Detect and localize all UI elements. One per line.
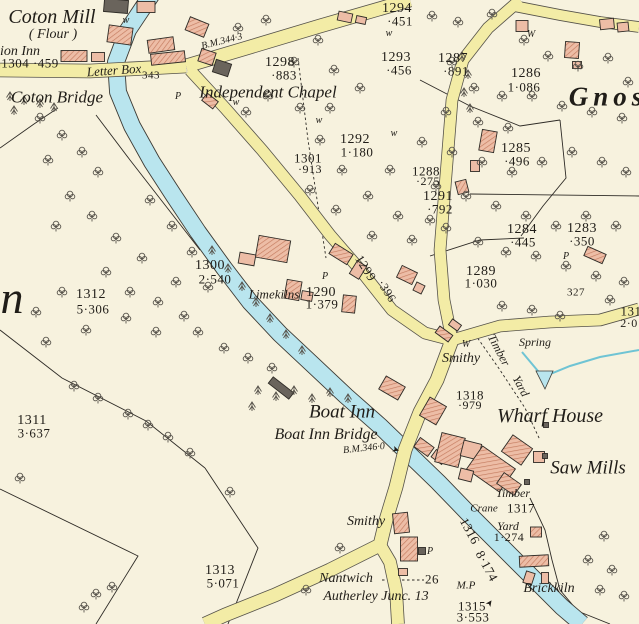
deciduous-tree-icon bbox=[331, 205, 341, 215]
conifer-tree-icon bbox=[461, 88, 468, 97]
label-limekilns: Limekilns bbox=[249, 288, 300, 301]
label-area-1287: ·891 bbox=[443, 65, 469, 78]
deciduous-tree-icon bbox=[591, 271, 601, 281]
deciduous-tree-icon bbox=[261, 15, 271, 25]
deciduous-tree-icon bbox=[599, 531, 609, 541]
deciduous-tree-icon bbox=[611, 221, 621, 231]
label-coton-mill: Coton Mill bbox=[8, 7, 95, 27]
deciduous-tree-icon bbox=[603, 53, 613, 63]
label-big-n: n bbox=[1, 275, 24, 321]
building bbox=[600, 18, 615, 29]
deciduous-tree-icon bbox=[171, 277, 181, 287]
label-num-327: 327 bbox=[567, 288, 585, 299]
deciduous-tree-icon bbox=[503, 123, 513, 133]
building bbox=[379, 376, 406, 400]
label-autherley: Autherley Junc. 13 bbox=[323, 590, 428, 604]
deciduous-tree-icon bbox=[267, 363, 277, 373]
label-gnosall: Gnos bbox=[569, 84, 639, 111]
deciduous-tree-icon bbox=[469, 83, 479, 93]
deciduous-tree-icon bbox=[581, 211, 591, 221]
label-area-1311: 3·637 bbox=[18, 427, 51, 440]
deciduous-tree-icon bbox=[57, 130, 67, 140]
label-spring: Spring bbox=[519, 336, 551, 348]
building bbox=[501, 435, 532, 465]
deciduous-tree-icon bbox=[123, 409, 133, 419]
label-area-1293: ·456 bbox=[386, 64, 412, 77]
label-area-1312: 5·306 bbox=[77, 303, 110, 316]
deciduous-tree-icon bbox=[77, 147, 87, 157]
deciduous-tree-icon bbox=[551, 221, 561, 231]
label-area-1301: ·913 bbox=[298, 163, 322, 175]
deciduous-tree-icon bbox=[557, 101, 567, 111]
deciduous-tree-icon bbox=[583, 555, 593, 565]
building bbox=[147, 37, 175, 53]
deciduous-tree-icon bbox=[145, 195, 155, 205]
deciduous-tree-icon bbox=[453, 17, 463, 27]
label-num-343: 343 bbox=[142, 71, 160, 82]
label-smithy-north: Smithy bbox=[442, 352, 480, 366]
conifer-tree-icon bbox=[255, 386, 262, 395]
conifer-tree-icon bbox=[273, 392, 280, 401]
deciduous-tree-icon bbox=[41, 337, 51, 347]
label-plot-1317: 1317 bbox=[507, 502, 535, 515]
building bbox=[401, 537, 418, 561]
deciduous-tree-icon bbox=[79, 602, 89, 612]
deciduous-tree-icon bbox=[561, 261, 571, 271]
label-pump-4: P bbox=[427, 547, 433, 557]
building bbox=[103, 0, 128, 14]
boundary-line bbox=[0, 108, 58, 148]
label-area-1288: ·275 bbox=[416, 175, 440, 187]
deciduous-tree-icon bbox=[15, 473, 25, 483]
label-area-1284: ·445 bbox=[510, 236, 536, 249]
label-area-1313: 5·071 bbox=[207, 577, 240, 590]
deciduous-tree-icon bbox=[125, 287, 135, 297]
conifer-tree-icon bbox=[467, 104, 474, 113]
deciduous-tree-icon bbox=[491, 201, 501, 211]
deciduous-tree-icon bbox=[313, 35, 323, 45]
building bbox=[455, 179, 469, 194]
deciduous-tree-icon bbox=[65, 191, 75, 201]
deciduous-tree-icon bbox=[521, 211, 531, 221]
label-pump-1: P bbox=[175, 92, 181, 102]
deciduous-tree-icon bbox=[473, 117, 483, 127]
building bbox=[92, 53, 105, 62]
building bbox=[419, 548, 426, 555]
label-well-3: w bbox=[386, 29, 393, 39]
road bbox=[380, 545, 398, 624]
building bbox=[268, 377, 293, 399]
label-well-1: w bbox=[123, 16, 130, 26]
label-boat-inn-bridge: Boat Inn Bridge bbox=[274, 427, 377, 443]
deciduous-tree-icon bbox=[617, 113, 627, 123]
deciduous-tree-icon bbox=[619, 591, 629, 601]
deciduous-tree-icon bbox=[363, 191, 373, 201]
building bbox=[342, 295, 357, 313]
label-coton-bridge: Coton Bridge bbox=[11, 89, 103, 106]
building bbox=[564, 42, 579, 59]
deciduous-tree-icon bbox=[417, 137, 427, 147]
deciduous-tree-icon bbox=[527, 305, 537, 315]
deciduous-tree-icon bbox=[93, 167, 103, 177]
deciduous-tree-icon bbox=[187, 247, 197, 257]
label-area-1298: ·883 bbox=[271, 69, 297, 82]
deciduous-tree-icon bbox=[407, 235, 417, 245]
label-plot-1312: 1312 bbox=[76, 288, 106, 302]
building bbox=[413, 282, 425, 294]
deciduous-tree-icon bbox=[385, 165, 395, 175]
deciduous-tree-icon bbox=[329, 65, 339, 75]
building-layer bbox=[61, 0, 629, 585]
building bbox=[238, 252, 256, 266]
building bbox=[392, 512, 409, 533]
deciduous-tree-icon bbox=[87, 211, 97, 221]
deciduous-tree-icon bbox=[57, 287, 67, 297]
building bbox=[212, 59, 231, 76]
deciduous-tree-icon bbox=[621, 167, 631, 177]
deciduous-tree-icon bbox=[107, 582, 117, 592]
label-area-1285: ·496 bbox=[504, 155, 530, 168]
label-timber-yard-s-1: Timber bbox=[496, 487, 530, 499]
label-well-6: w bbox=[391, 129, 398, 139]
label-letter-box: Letter Box bbox=[86, 62, 141, 79]
label-area-1286: 1·086 bbox=[508, 81, 541, 94]
deciduous-tree-icon bbox=[325, 103, 335, 113]
label-timber-crane: Crane bbox=[470, 504, 498, 515]
deciduous-tree-icon bbox=[243, 353, 253, 363]
label-flour: ( Flour ) bbox=[29, 28, 77, 42]
deciduous-tree-icon bbox=[101, 267, 111, 277]
deciduous-tree-icon bbox=[179, 311, 189, 321]
building bbox=[355, 16, 366, 25]
conifer-tree-icon bbox=[291, 386, 298, 395]
road bbox=[186, 0, 410, 66]
label-well-4: W bbox=[527, 30, 535, 40]
conifer-tree-icon bbox=[249, 402, 256, 411]
deciduous-tree-icon bbox=[315, 135, 325, 145]
building bbox=[107, 25, 133, 45]
deciduous-tree-icon bbox=[225, 487, 235, 497]
label-area-1290: 1·379 bbox=[306, 298, 339, 311]
deciduous-tree-icon bbox=[111, 233, 121, 243]
deciduous-tree-icon bbox=[567, 147, 577, 157]
label-area-1289: 1·030 bbox=[465, 277, 498, 290]
deciduous-tree-icon bbox=[151, 327, 161, 337]
deciduous-tree-icon bbox=[355, 83, 365, 93]
deciduous-tree-icon bbox=[597, 157, 607, 167]
label-area-1300: 2·540 bbox=[199, 273, 232, 286]
deciduous-tree-icon bbox=[51, 221, 61, 231]
label-well-7: W bbox=[462, 340, 470, 350]
os-map-canvas: Coton Mill( Flour )ion Inn1304 ·459Lette… bbox=[0, 0, 639, 624]
label-area-1294: ·451 bbox=[387, 15, 413, 28]
label-brickkiln: Brickkiln bbox=[523, 582, 574, 596]
boundary-line bbox=[0, 489, 138, 624]
label-boat-inn: Boat Inn bbox=[309, 403, 375, 422]
deciduous-tree-icon bbox=[193, 327, 203, 337]
building bbox=[584, 246, 606, 263]
deciduous-tree-icon bbox=[137, 253, 147, 263]
deciduous-tree-icon bbox=[497, 301, 507, 311]
deciduous-tree-icon bbox=[31, 307, 41, 317]
deciduous-tree-icon bbox=[393, 211, 403, 221]
deciduous-tree-icon bbox=[335, 543, 345, 553]
deciduous-tree-icon bbox=[121, 313, 131, 323]
label-area-1315: 3·553 bbox=[457, 611, 490, 624]
label-area-1291: ·792 bbox=[427, 203, 453, 216]
label-mile-post: M.P bbox=[457, 581, 476, 592]
boundary-line bbox=[470, 194, 639, 196]
deciduous-tree-icon bbox=[531, 251, 541, 261]
label-plot-1304: 1304 ·459 bbox=[1, 57, 59, 70]
label-area-1318: ·979 bbox=[458, 399, 482, 411]
building bbox=[617, 22, 629, 32]
building bbox=[61, 51, 87, 62]
deciduous-tree-icon bbox=[167, 221, 177, 231]
label-pump-3: P bbox=[563, 252, 569, 262]
building bbox=[471, 161, 480, 172]
label-nantwich: Nantwich bbox=[319, 572, 373, 586]
deciduous-tree-icon bbox=[241, 107, 251, 117]
deciduous-tree-icon bbox=[537, 157, 547, 167]
label-area-1292: 1·180 bbox=[341, 146, 374, 159]
deciduous-tree-icon bbox=[427, 11, 437, 21]
building bbox=[185, 17, 209, 37]
label-wharf-house: Wharf House bbox=[497, 406, 603, 426]
label-well-5: w bbox=[316, 116, 323, 126]
boundary-line bbox=[96, 115, 200, 250]
building bbox=[519, 555, 549, 568]
deciduous-tree-icon bbox=[153, 297, 163, 307]
deciduous-tree-icon bbox=[91, 589, 101, 599]
label-well-2: w bbox=[233, 98, 240, 108]
deciduous-tree-icon bbox=[605, 295, 615, 305]
label-area-131x: 2·0 bbox=[620, 317, 638, 329]
building bbox=[531, 527, 542, 537]
building bbox=[479, 129, 497, 152]
label-smithy-south: Smithy bbox=[347, 515, 385, 529]
label-area-1317: 1·274 bbox=[494, 531, 525, 543]
deciduous-tree-icon bbox=[507, 167, 517, 177]
deciduous-tree-icon bbox=[543, 51, 553, 61]
building bbox=[399, 569, 408, 576]
conifer-tree-icon bbox=[11, 106, 18, 115]
deciduous-tree-icon bbox=[619, 277, 629, 287]
label-pump-2: P bbox=[322, 272, 328, 282]
building bbox=[543, 454, 548, 459]
label-nantwich-miles: 26 bbox=[425, 573, 439, 586]
deciduous-tree-icon bbox=[497, 91, 507, 101]
deciduous-tree-icon bbox=[305, 185, 315, 195]
deciduous-tree-icon bbox=[595, 585, 605, 595]
label-area-1283: ·350 bbox=[569, 235, 595, 248]
building bbox=[397, 265, 418, 284]
deciduous-tree-icon bbox=[473, 237, 483, 247]
deciduous-tree-icon bbox=[219, 343, 229, 353]
deciduous-tree-icon bbox=[81, 325, 91, 335]
pond bbox=[536, 371, 553, 389]
deciduous-tree-icon bbox=[337, 165, 347, 175]
label-saw-mills: Saw Mills bbox=[550, 459, 625, 478]
building bbox=[435, 433, 466, 468]
deciduous-tree-icon bbox=[425, 215, 435, 225]
building bbox=[255, 235, 290, 262]
building bbox=[137, 2, 155, 13]
deciduous-tree-icon bbox=[607, 565, 617, 575]
deciduous-tree-icon bbox=[367, 231, 377, 241]
deciduous-tree-icon bbox=[43, 155, 53, 165]
building bbox=[525, 480, 530, 485]
label-independent-chapel: Independent Chapel bbox=[199, 84, 336, 101]
